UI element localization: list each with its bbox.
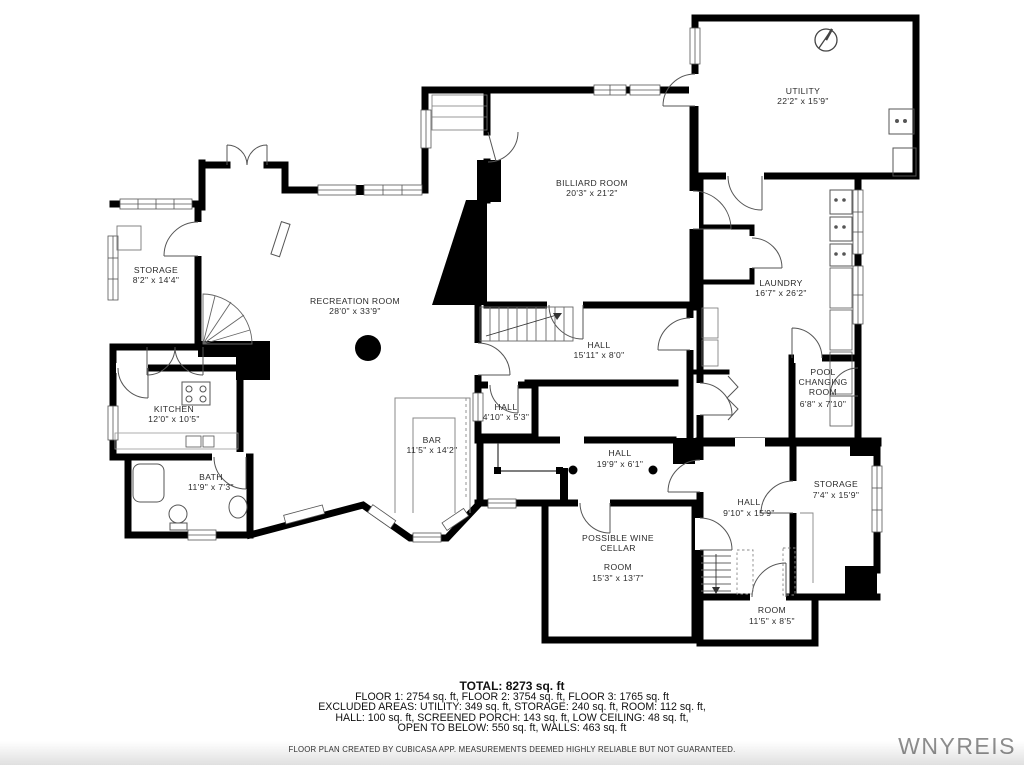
toilet-icon [169,505,187,530]
room-name: POOL [810,367,835,377]
room-name: ROOM [758,605,786,615]
window [368,505,396,528]
staircase-curved [203,294,252,344]
room-name: ROOM [809,387,837,397]
room-dims: 9'10" x 15'9" [723,508,775,518]
room-name: POSSIBLE WINE [582,533,654,543]
stove-icon [182,382,210,405]
room-dims: 15'3" x 13'7" [592,573,644,583]
room-label-kitchen: KITCHEN 12'0" x 10'5" [148,404,200,424]
room-label-recreation: RECREATION ROOM 28'0" x 33'9" [310,296,400,316]
area-summary: TOTAL: 8273 sq. ft FLOOR 1: 2754 sq. ft,… [0,680,1024,754]
room-name: STORAGE [814,479,858,489]
window [364,185,422,195]
room-dims: 16'7" x 26'2" [755,288,807,298]
walls [113,18,916,643]
window [421,110,431,148]
bathtub-icon [133,464,164,502]
window [413,533,441,542]
room-dims: 11'9" x 7'3" [188,482,234,492]
kitchen-counter [115,433,238,449]
room-name: HALL [738,497,761,507]
room-name: UTILITY [786,86,820,96]
room-dims: 7'4" x 15'9" [813,490,860,500]
room-dims: 28'0" x 33'9" [329,306,381,316]
window [594,85,626,95]
room-dims: 22'2" x 15'9" [777,96,829,106]
room-dims: 4'10" x 5'3" [483,412,530,422]
open-door-leaf [271,222,290,257]
window [473,393,483,421]
room-label-storage-right: STORAGE 7'4" x 15'9" [813,479,860,500]
room-name: CHANGING [798,377,847,387]
bar-counter [395,398,470,513]
room-name: BATH [199,472,223,482]
room-name: HALL [609,448,632,458]
room-name: HALL [588,340,611,350]
washer-icon [889,109,914,134]
room-dims: 15'11" x 8'0" [573,350,624,360]
room-label-utility: UTILITY 22'2" x 15'9" [777,86,829,106]
window [690,28,700,64]
room-label-pool-changing: POOL CHANGING ROOM 6'8" x 7'10" [798,367,847,409]
room-label-hall-upper: HALL 15'11" x 8'0" [573,340,624,360]
staircase-main [480,307,573,341]
railing [494,443,563,474]
room-label-laundry: LAUNDRY 16'7" x 26'2" [755,278,807,298]
window [108,236,118,300]
room-dims: 20'3" x 21'2" [566,188,618,198]
storage-desk [117,226,141,250]
room-name: LAUNDRY [759,278,802,288]
room-dims: 12'0" x 10'5" [148,414,200,424]
room-dims: 8'2" x 14'4" [133,275,180,285]
room-label-bar: BAR 11'5" x 14'2" [406,435,457,455]
room-name: BILLIARD ROOM [556,178,628,188]
window [108,406,118,440]
sink-icon [229,496,247,518]
floor-plan-svg: UTILITY 22'2" x 15'9" BILLIARD ROOM 20'3… [0,0,1024,765]
room-name: CELLAR [600,543,636,553]
room-name: RECREATION ROOM [310,296,400,306]
entry-closet-shelves [432,95,487,130]
corridor-cabinets [702,308,718,366]
disclaimer-text: FLOOR PLAN CREATED BY CUBICASA APP. MEAS… [0,745,1024,754]
room-label-hall-small: HALL 4'10" x 5'3" [483,402,530,422]
room-label-billiard: BILLIARD ROOM 20'3" x 21'2" [556,178,628,198]
window [488,499,516,508]
room-name: KITCHEN [154,404,194,414]
room-dims: 6'8" x 7'10" [800,399,847,409]
compass-icon [815,29,837,51]
wall-masses [198,160,877,597]
room-name: BAR [423,435,442,445]
window [853,266,863,324]
storage-step [800,513,813,583]
room-label-bath: BATH 11'9" x 7'3" [188,472,234,492]
room-dims: 19'9" x 6'1" [597,459,644,469]
room-dims: 11'5" x 14'2" [406,445,457,455]
room-name: ROOM [604,562,632,572]
window [853,190,863,254]
wnyreis-watermark: WNYREIS [898,733,1016,760]
room-dims: 11'5" x 8'5" [749,616,795,626]
room-label-storage-left: STORAGE 8'2" x 14'4" [133,265,180,285]
room-name: STORAGE [134,265,178,275]
window [120,199,192,209]
staircase-lower [701,554,731,594]
room-name: HALL [495,402,518,412]
room-label-room-small: ROOM 11'5" x 8'5" [749,605,795,626]
window [872,466,882,532]
excluded-areas-3: OPEN TO BELOW: 550 sq. ft, WALLS: 463 sq… [0,723,1024,733]
room-label-hall-long: HALL 19'9" x 6'1" [597,448,644,469]
room-label-hall-right: HALL 9'10" x 15'9" [723,497,775,518]
window [630,85,660,95]
window [188,530,216,540]
bifold-door [727,376,738,420]
room-label-wine-cellar: POSSIBLE WINE CELLAR ROOM 15'3" x 13'7" [582,533,654,583]
window [318,185,356,195]
